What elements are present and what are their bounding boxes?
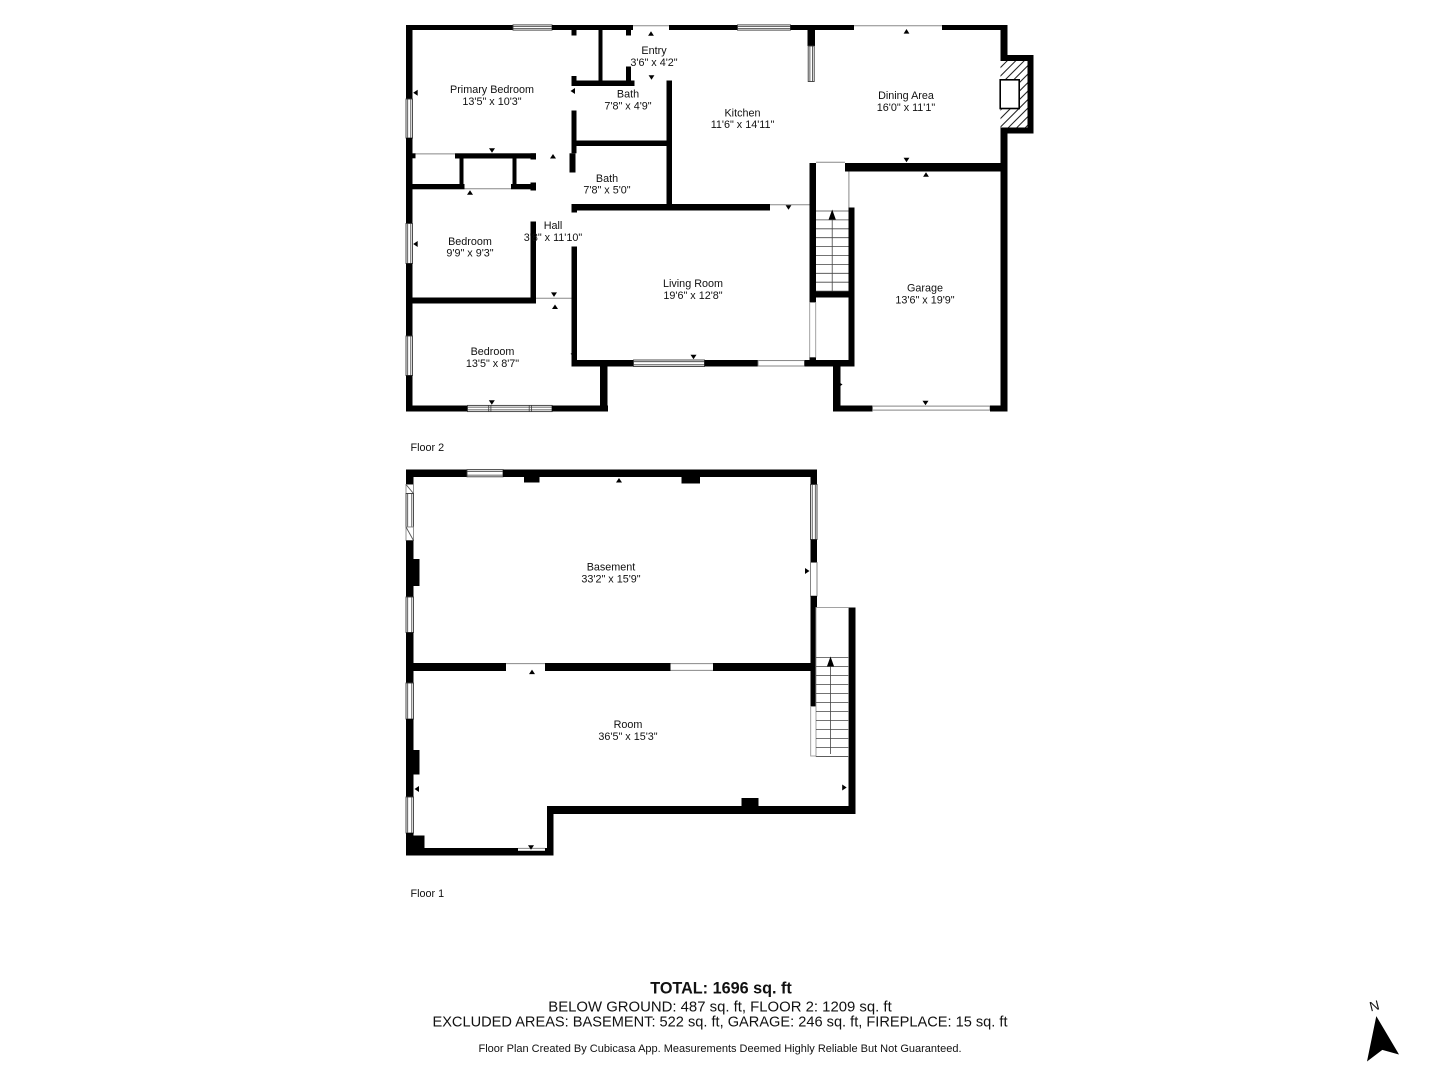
svg-text:Living Room: Living Room (663, 278, 723, 290)
svg-text:BELOW GROUND: 487 sq. ft, FLOO: BELOW GROUND: 487 sq. ft, FLOOR 2: 1209 … (548, 999, 892, 1015)
svg-text:Floor 1: Floor 1 (411, 888, 445, 900)
svg-text:EXCLUDED AREAS: BASEMENT: 522: EXCLUDED AREAS: BASEMENT: 522 sq. ft, GA… (432, 1014, 1007, 1030)
svg-text:Bath: Bath (617, 89, 639, 101)
svg-text:36'5" x 15'3": 36'5" x 15'3" (598, 731, 657, 743)
svg-text:13'6" x 19'9": 13'6" x 19'9" (895, 294, 954, 306)
svg-text:Bath: Bath (596, 173, 618, 185)
svg-text:13'5" x 10'3": 13'5" x 10'3" (462, 96, 521, 108)
svg-text:Kitchen: Kitchen (724, 107, 760, 119)
svg-text:16'0" x 11'1": 16'0" x 11'1" (877, 102, 936, 114)
svg-text:Floor 2: Floor 2 (411, 442, 445, 454)
svg-text:13'5" x 8'7": 13'5" x 8'7" (466, 358, 519, 370)
svg-text:Dining Area: Dining Area (878, 90, 934, 102)
svg-text:Bedroom: Bedroom (448, 236, 492, 248)
svg-text:TOTAL: 1696 sq. ft: TOTAL: 1696 sq. ft (650, 979, 792, 997)
svg-text:19'6" x 12'8": 19'6" x 12'8" (663, 290, 722, 302)
svg-text:9'9" x 9'3": 9'9" x 9'3" (446, 248, 493, 260)
svg-text:7'8" x 4'9": 7'8" x 4'9" (604, 100, 651, 112)
svg-text:Room: Room (614, 719, 643, 731)
svg-text:3'8" x 11'10": 3'8" x 11'10" (524, 232, 583, 244)
svg-text:Entry: Entry (641, 45, 667, 57)
svg-text:33'2" x 15'9": 33'2" x 15'9" (581, 574, 640, 586)
svg-text:7'8" x 5'0": 7'8" x 5'0" (583, 185, 630, 197)
svg-text:3'6" x 4'2": 3'6" x 4'2" (630, 57, 677, 69)
svg-text:Bedroom: Bedroom (471, 346, 515, 358)
svg-text:Primary Bedroom: Primary Bedroom (450, 84, 534, 96)
svg-text:Floor Plan Created By Cubicasa: Floor Plan Created By Cubicasa App. Meas… (478, 1043, 961, 1055)
svg-text:Basement: Basement (587, 562, 636, 574)
svg-text:Hall: Hall (544, 220, 563, 232)
svg-text:Garage: Garage (907, 283, 943, 295)
svg-text:11'6" x 14'11": 11'6" x 14'11" (711, 119, 775, 131)
